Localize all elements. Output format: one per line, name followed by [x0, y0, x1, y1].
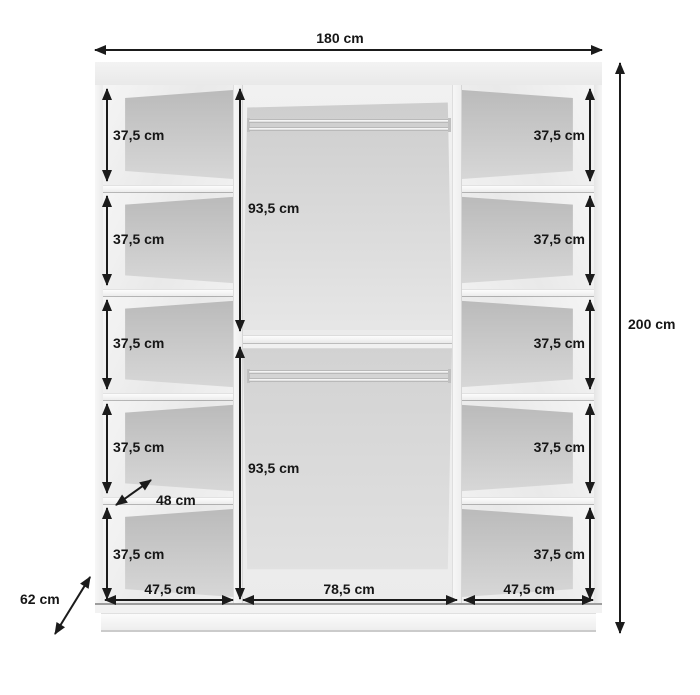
width-dimension-arrow	[95, 49, 602, 51]
section-width-left-label: 47,5 cm	[144, 581, 195, 597]
right-shelf-height-arrow-4	[589, 404, 591, 493]
hanging-height-bottom-arrow	[239, 347, 241, 599]
wardrobe-left-side-panel	[95, 85, 103, 603]
left-shelf-height-label-5: 37,5 cm	[113, 546, 164, 562]
section-width-right-label: 47,5 cm	[503, 581, 554, 597]
left-shelf-height-arrow-2	[106, 196, 108, 285]
left-shelf-3	[103, 393, 233, 400]
right-shelf-height-arrow-3	[589, 300, 591, 389]
section-width-middle-label: 78,5 cm	[323, 581, 374, 597]
left-shelf-height-arrow-5	[106, 508, 108, 599]
left-shelf-height-arrow-1	[106, 89, 108, 181]
rail-bar	[248, 119, 450, 123]
right-shelf-1	[462, 185, 594, 192]
hanging-height-top-arrow	[239, 89, 241, 331]
left-shelf-2	[103, 289, 233, 296]
shelf-depth-label: 48 cm	[156, 492, 196, 508]
section-width-right-arrow	[464, 599, 593, 601]
left-shelf-height-label-2: 37,5 cm	[113, 231, 164, 247]
wardrobe-plinth	[101, 613, 596, 632]
right-shelf-height-label-2: 37,5 cm	[505, 231, 585, 247]
rail-bar	[248, 127, 450, 131]
left-shelf-height-arrow-4	[106, 404, 108, 493]
left-shelf-1	[103, 185, 233, 192]
width-dimension-label: 180 cm	[316, 30, 363, 46]
hanging-height-bottom-label: 93,5 cm	[248, 460, 299, 476]
left-shelf-height-label-1: 37,5 cm	[113, 127, 164, 143]
wardrobe-base	[95, 603, 602, 613]
right-shelf-height-label-1: 37,5 cm	[505, 127, 585, 143]
right-shelf-4	[462, 497, 594, 504]
depth-dimension-label: 62 cm	[20, 591, 60, 607]
middle-shelf	[243, 335, 452, 343]
wardrobe-dimension-diagram: 180 cm 200 cm 62 cm 37,5 cm 37,5 cm	[0, 0, 700, 695]
height-dimension-arrow	[619, 63, 621, 633]
right-shelf-height-arrow-1	[589, 89, 591, 181]
section-width-left-arrow	[105, 599, 233, 601]
hanging-height-top-label: 93,5 cm	[248, 200, 299, 216]
left-shelf-height-label-4: 37,5 cm	[113, 439, 164, 455]
bottom-hanging-rail	[248, 370, 450, 382]
rail-bar	[248, 378, 450, 382]
left-shelf-height-label-3: 37,5 cm	[113, 335, 164, 351]
top-hanging-rail	[248, 119, 450, 131]
left-divider-panel	[233, 85, 243, 603]
right-shelf-height-arrow-2	[589, 196, 591, 285]
right-shelf-2	[462, 289, 594, 296]
right-shelf-height-label-4: 37,5 cm	[505, 439, 585, 455]
rail-bar	[248, 370, 450, 374]
wardrobe-top-panel	[95, 62, 602, 85]
right-shelf-3	[462, 393, 594, 400]
right-divider-panel	[452, 85, 462, 603]
right-shelf-height-arrow-5	[589, 508, 591, 599]
wardrobe-right-side-panel	[594, 85, 602, 603]
right-shelf-height-label-3: 37,5 cm	[505, 335, 585, 351]
section-width-middle-arrow	[243, 599, 457, 601]
left-shelf-height-arrow-3	[106, 300, 108, 389]
right-shelf-height-label-5: 37,5 cm	[505, 546, 585, 562]
height-dimension-label: 200 cm	[628, 316, 675, 332]
